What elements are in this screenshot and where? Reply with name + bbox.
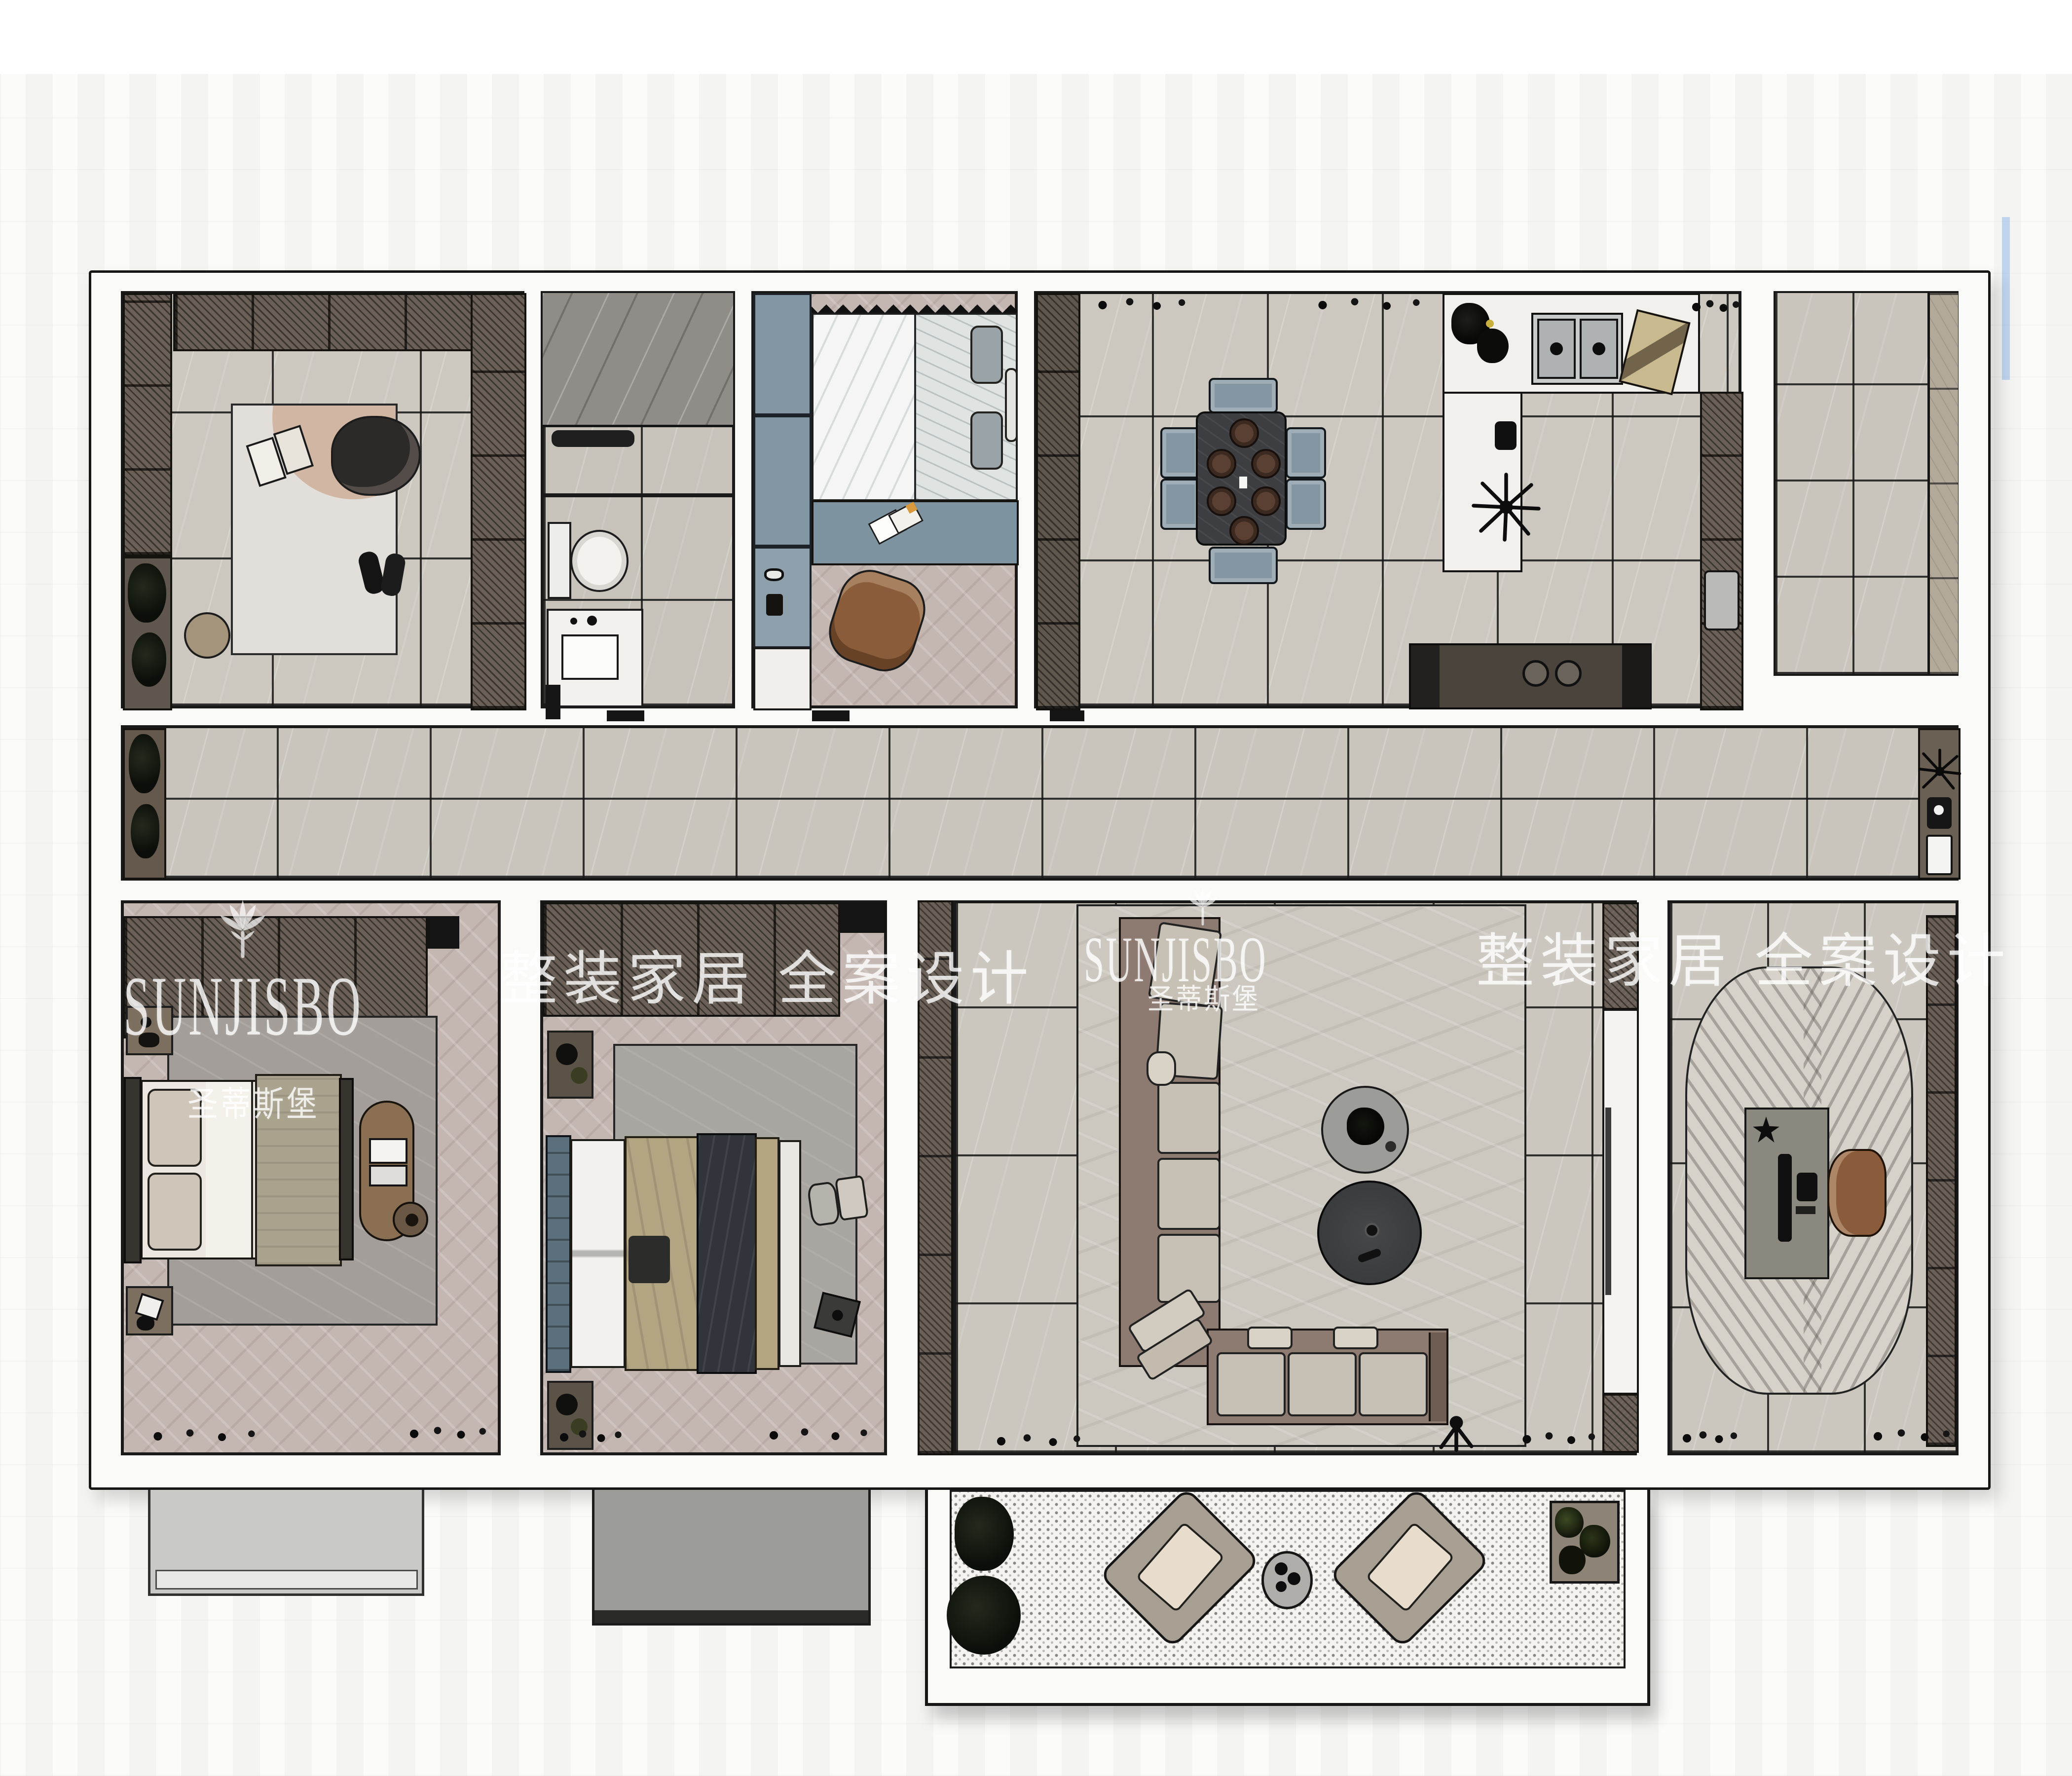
burner [1555, 660, 1582, 687]
sofa-corner-pillows [1130, 1296, 1219, 1375]
kitchen-counter-bottom [1409, 643, 1652, 709]
toilet-bowl [570, 530, 629, 592]
pouf [184, 612, 230, 659]
background-blue-strip [2002, 217, 2010, 380]
lounge-chair [1099, 1487, 1260, 1649]
balcony-table [1261, 1551, 1313, 1609]
drain-dot [1550, 342, 1563, 355]
dining-table [1196, 411, 1287, 546]
pillow [148, 1173, 202, 1251]
wardrobe-end-block [839, 902, 886, 933]
pillow [970, 326, 1003, 384]
cushion-light [835, 1175, 869, 1221]
bathroom-vanity [547, 609, 643, 707]
dining-chair-left [1160, 479, 1201, 530]
table-spoon [1357, 1248, 1382, 1263]
faucet-dot [587, 616, 597, 626]
balcony-floor [950, 1490, 1626, 1668]
lounge-chair [1329, 1487, 1490, 1649]
dining-left-bookshelf [1036, 293, 1080, 710]
curtain-fringe [810, 293, 1017, 314]
sink-basin [561, 634, 619, 680]
tv-wall-cabinet-bottom [1602, 1394, 1639, 1453]
planter-box [1550, 1501, 1620, 1584]
pepper-grinder [1495, 421, 1517, 450]
decor-circle [571, 1067, 588, 1084]
slogan-watermark-right: 整装家居 全案设计 [1476, 914, 2011, 998]
paper-corner [905, 502, 917, 514]
napkin [1239, 477, 1247, 488]
kids-cabinet-small [753, 547, 812, 648]
back-pillow [1247, 1327, 1293, 1349]
plate [1207, 486, 1236, 516]
pillow [970, 411, 1003, 470]
kids-bed [812, 313, 1018, 501]
sofa-horizontal-base [1207, 1329, 1448, 1425]
plate [1251, 449, 1281, 479]
kids-bedroom [751, 291, 1018, 708]
corridor [121, 725, 1959, 881]
plate [1229, 418, 1259, 448]
chair-cushion [1136, 1521, 1225, 1613]
slipper-cushions [806, 1175, 872, 1234]
faucet-dot [570, 618, 577, 625]
plant-row [1677, 1428, 1741, 1445]
entry-plant-icon [1917, 732, 1962, 806]
shower-screen-bar [552, 430, 634, 447]
table-plant-dot [1275, 1562, 1288, 1575]
sofa-cushion [1157, 1158, 1221, 1230]
dining-chair-top [1209, 378, 1278, 413]
herb-plant-icon [1469, 468, 1543, 547]
cloakroom [121, 291, 524, 708]
desk-item [1796, 1206, 1815, 1214]
plant-icon [131, 804, 159, 858]
utility-floor [1776, 293, 1927, 674]
plant-row [139, 1426, 267, 1443]
door-threshold [812, 710, 850, 721]
round-side-table [393, 1202, 428, 1237]
bathroom [541, 291, 735, 708]
cloakroom-top-wardrobe [173, 293, 474, 351]
planter-green [1580, 1525, 1610, 1557]
pantry-column [1700, 392, 1743, 710]
fridge [1704, 570, 1739, 630]
plant-icon [129, 734, 160, 793]
tripod-fan-icon [1433, 1406, 1480, 1454]
kettle-icon [764, 568, 784, 581]
throw-pillow [1147, 1051, 1176, 1086]
headboard [124, 1077, 142, 1263]
decor-blob [137, 1316, 154, 1331]
footboard [339, 1078, 354, 1260]
lemon-dot [1486, 320, 1494, 328]
chair-cushion [1366, 1521, 1455, 1613]
kids-desk [812, 500, 1019, 565]
dining-chair-right [1286, 479, 1326, 530]
plant-icon [132, 632, 166, 687]
cloakroom-left-wardrobe [123, 293, 172, 556]
sofa-seat [1217, 1352, 1286, 1416]
cup-dot [406, 1214, 418, 1226]
lounge-chair [331, 416, 421, 496]
bolster-pillow [1005, 368, 1018, 442]
counter-end-block [1622, 645, 1651, 707]
navy-quilt [697, 1133, 757, 1374]
table-plant [1347, 1108, 1384, 1145]
desk-plant-icon [1750, 1113, 1782, 1145]
counter-end-block [1411, 645, 1440, 707]
balcony-plant-large [955, 1497, 1014, 1571]
dining-chair-right [1286, 427, 1326, 479]
balcony [925, 1490, 1650, 1706]
veg-blob [1477, 329, 1509, 363]
coffee-table-dark [1317, 1181, 1422, 1285]
plant-row [400, 1424, 494, 1441]
plate [1207, 449, 1236, 479]
burner [1522, 660, 1549, 687]
plant-icon [128, 563, 166, 623]
plant-row [986, 1431, 1089, 1448]
laptop-screen [369, 1138, 407, 1164]
utility-cabinet-strip [1927, 293, 1958, 674]
sink-basin [1537, 319, 1576, 379]
door-threshold [1050, 710, 1084, 721]
entry-shoe-box [1926, 835, 1953, 875]
wardrobe-end-block [428, 916, 459, 949]
brand-watermark-left: SUNJISBO [123, 958, 363, 1055]
plant-row [1864, 1426, 1958, 1443]
kids-cabinet-white [753, 647, 812, 710]
tray-dot [831, 1309, 844, 1322]
foliage-top [1303, 295, 1432, 312]
bay-window-master [148, 1490, 424, 1596]
foliage-top [1086, 295, 1195, 312]
plant-row [553, 1427, 627, 1444]
dining-kitchen [1034, 291, 1741, 708]
decor-circle [556, 1043, 578, 1065]
tv-panel [1602, 1009, 1639, 1395]
table-knob [1365, 1223, 1379, 1238]
vegetables [1451, 300, 1525, 384]
back-pillow [1333, 1327, 1378, 1349]
sofa-cushion [1157, 1082, 1221, 1154]
drain-dot [1592, 342, 1605, 355]
corridor-plant-mat-left [123, 728, 166, 880]
kids-cabinet-tall [753, 415, 812, 547]
coffee-table-light [1321, 1086, 1409, 1174]
slippers-icon [362, 552, 404, 597]
utility-room [1774, 291, 1959, 676]
cloakroom-right-wardrobe [471, 293, 526, 710]
tv-screen-line [1605, 1108, 1611, 1295]
cloakroom-plant-mat [123, 556, 172, 710]
decor-circle [556, 1394, 578, 1415]
office-chair [1827, 1149, 1887, 1237]
shower-area [543, 293, 733, 427]
sink-basin [1580, 319, 1618, 379]
bay-window-sill [155, 1570, 418, 1590]
plate [1251, 486, 1281, 516]
dining-chair-left [1160, 427, 1201, 479]
appliance-icon [766, 594, 783, 616]
desk-monitor-base [1797, 1173, 1817, 1201]
headboard [546, 1135, 571, 1373]
kids-chair [821, 562, 934, 679]
dark-cushion [629, 1236, 670, 1283]
stool-dot [1934, 805, 1944, 815]
door-threshold [607, 710, 644, 721]
sofa-seat [1359, 1352, 1428, 1416]
brand-cn-watermark-center: 圣蒂斯堡 [1147, 976, 1260, 1017]
bay-window-bedroom2 [592, 1490, 871, 1626]
nightstand [126, 1286, 173, 1335]
plant-row [755, 1425, 879, 1442]
tan-strip [755, 1137, 779, 1370]
bed-duvet [814, 315, 916, 499]
entry-stool-dark [1927, 797, 1952, 829]
white-edge [778, 1140, 801, 1367]
sofa-seat [1288, 1352, 1357, 1416]
laptop-keyboard [369, 1165, 407, 1186]
balcony-plant-large [947, 1576, 1021, 1655]
kids-cabinet-tall [753, 293, 812, 415]
entry-mat-right [1918, 728, 1961, 880]
table-plant-dot [1288, 1572, 1300, 1585]
planter-green [1555, 1507, 1584, 1538]
toilet-tank [548, 522, 571, 599]
study-desk [1744, 1108, 1829, 1279]
brand-cn-watermark-left: 圣蒂斯堡 [187, 1076, 320, 1126]
dining-chair-bottom [1209, 547, 1278, 584]
table-dot [1385, 1141, 1396, 1152]
kitchen-sink [1531, 313, 1623, 385]
plant-row [1514, 1429, 1602, 1446]
desk-keyboard-bar [1778, 1154, 1792, 1242]
nightstand [547, 1031, 593, 1099]
pillows-column [570, 1139, 626, 1368]
slipper [380, 552, 407, 597]
bedroom2-bed [546, 1135, 803, 1373]
vanity-cabinet-dark [546, 685, 560, 719]
foliage-corner [1688, 297, 1742, 314]
glass-partition [543, 493, 733, 497]
slogan-watermark-left: 整装家居 全案设计 [499, 931, 1035, 1016]
planter-green [1559, 1546, 1586, 1574]
table-plant-dot [1276, 1581, 1287, 1592]
plate [1229, 516, 1259, 546]
